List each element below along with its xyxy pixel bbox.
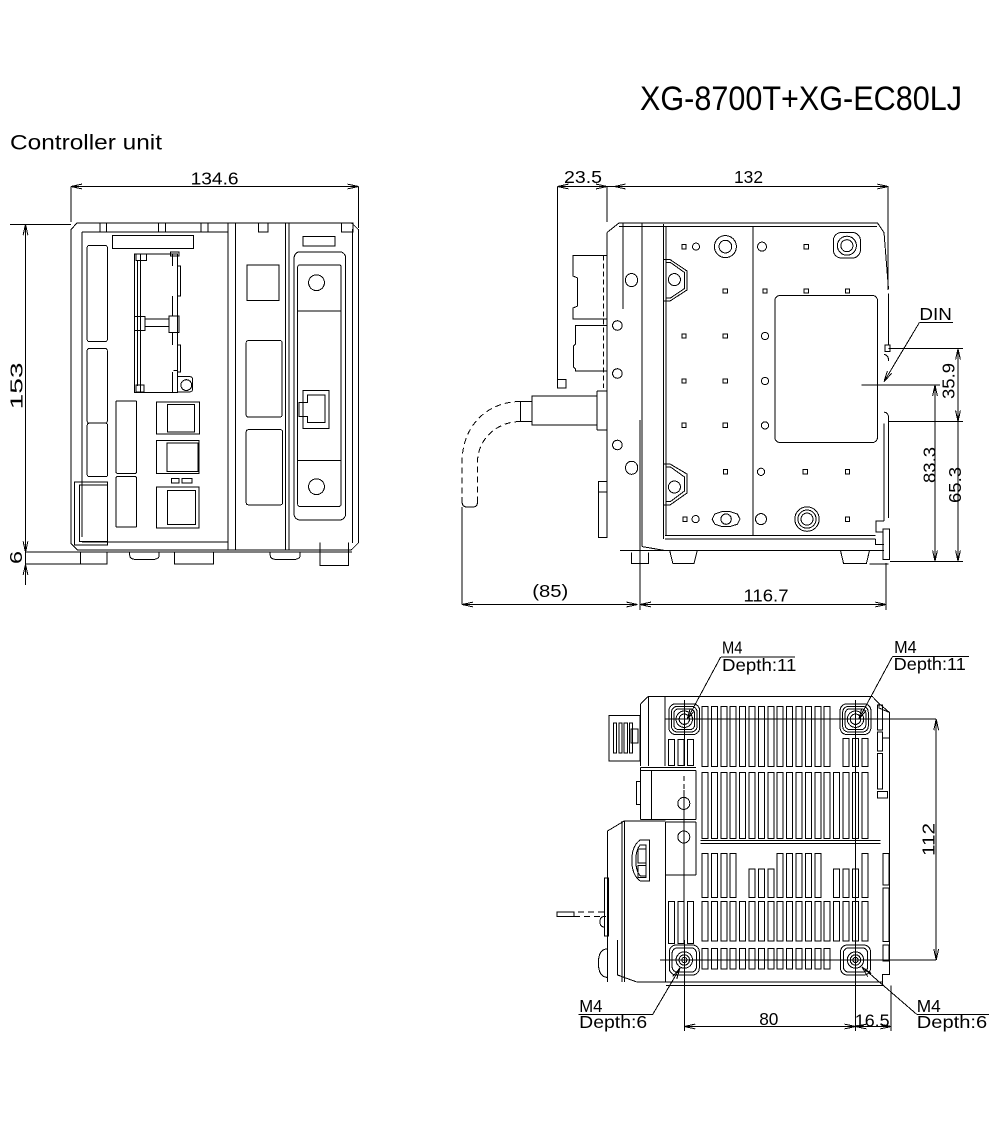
svg-text:(85): (85) [532, 581, 568, 601]
svg-text:83.3: 83.3 [920, 447, 940, 483]
svg-text:Depth:11: Depth:11 [894, 654, 966, 674]
svg-text:XG-8700T+XG-EC80LJ: XG-8700T+XG-EC80LJ [640, 80, 962, 118]
svg-text:112: 112 [919, 823, 939, 856]
svg-text:Depth:11: Depth:11 [722, 655, 796, 675]
svg-text:Controller unit: Controller unit [10, 131, 162, 155]
svg-text:6: 6 [6, 551, 26, 564]
svg-text:Depth:6: Depth:6 [579, 1012, 647, 1032]
svg-text:65.3: 65.3 [945, 467, 965, 503]
svg-text:132: 132 [734, 167, 763, 187]
svg-text:Depth:6: Depth:6 [917, 1012, 987, 1032]
svg-text:DIN: DIN [919, 304, 952, 324]
svg-text:153: 153 [7, 362, 27, 409]
svg-text:134.6: 134.6 [191, 169, 239, 189]
svg-text:116.7: 116.7 [744, 586, 789, 606]
svg-text:35.9: 35.9 [939, 363, 959, 399]
